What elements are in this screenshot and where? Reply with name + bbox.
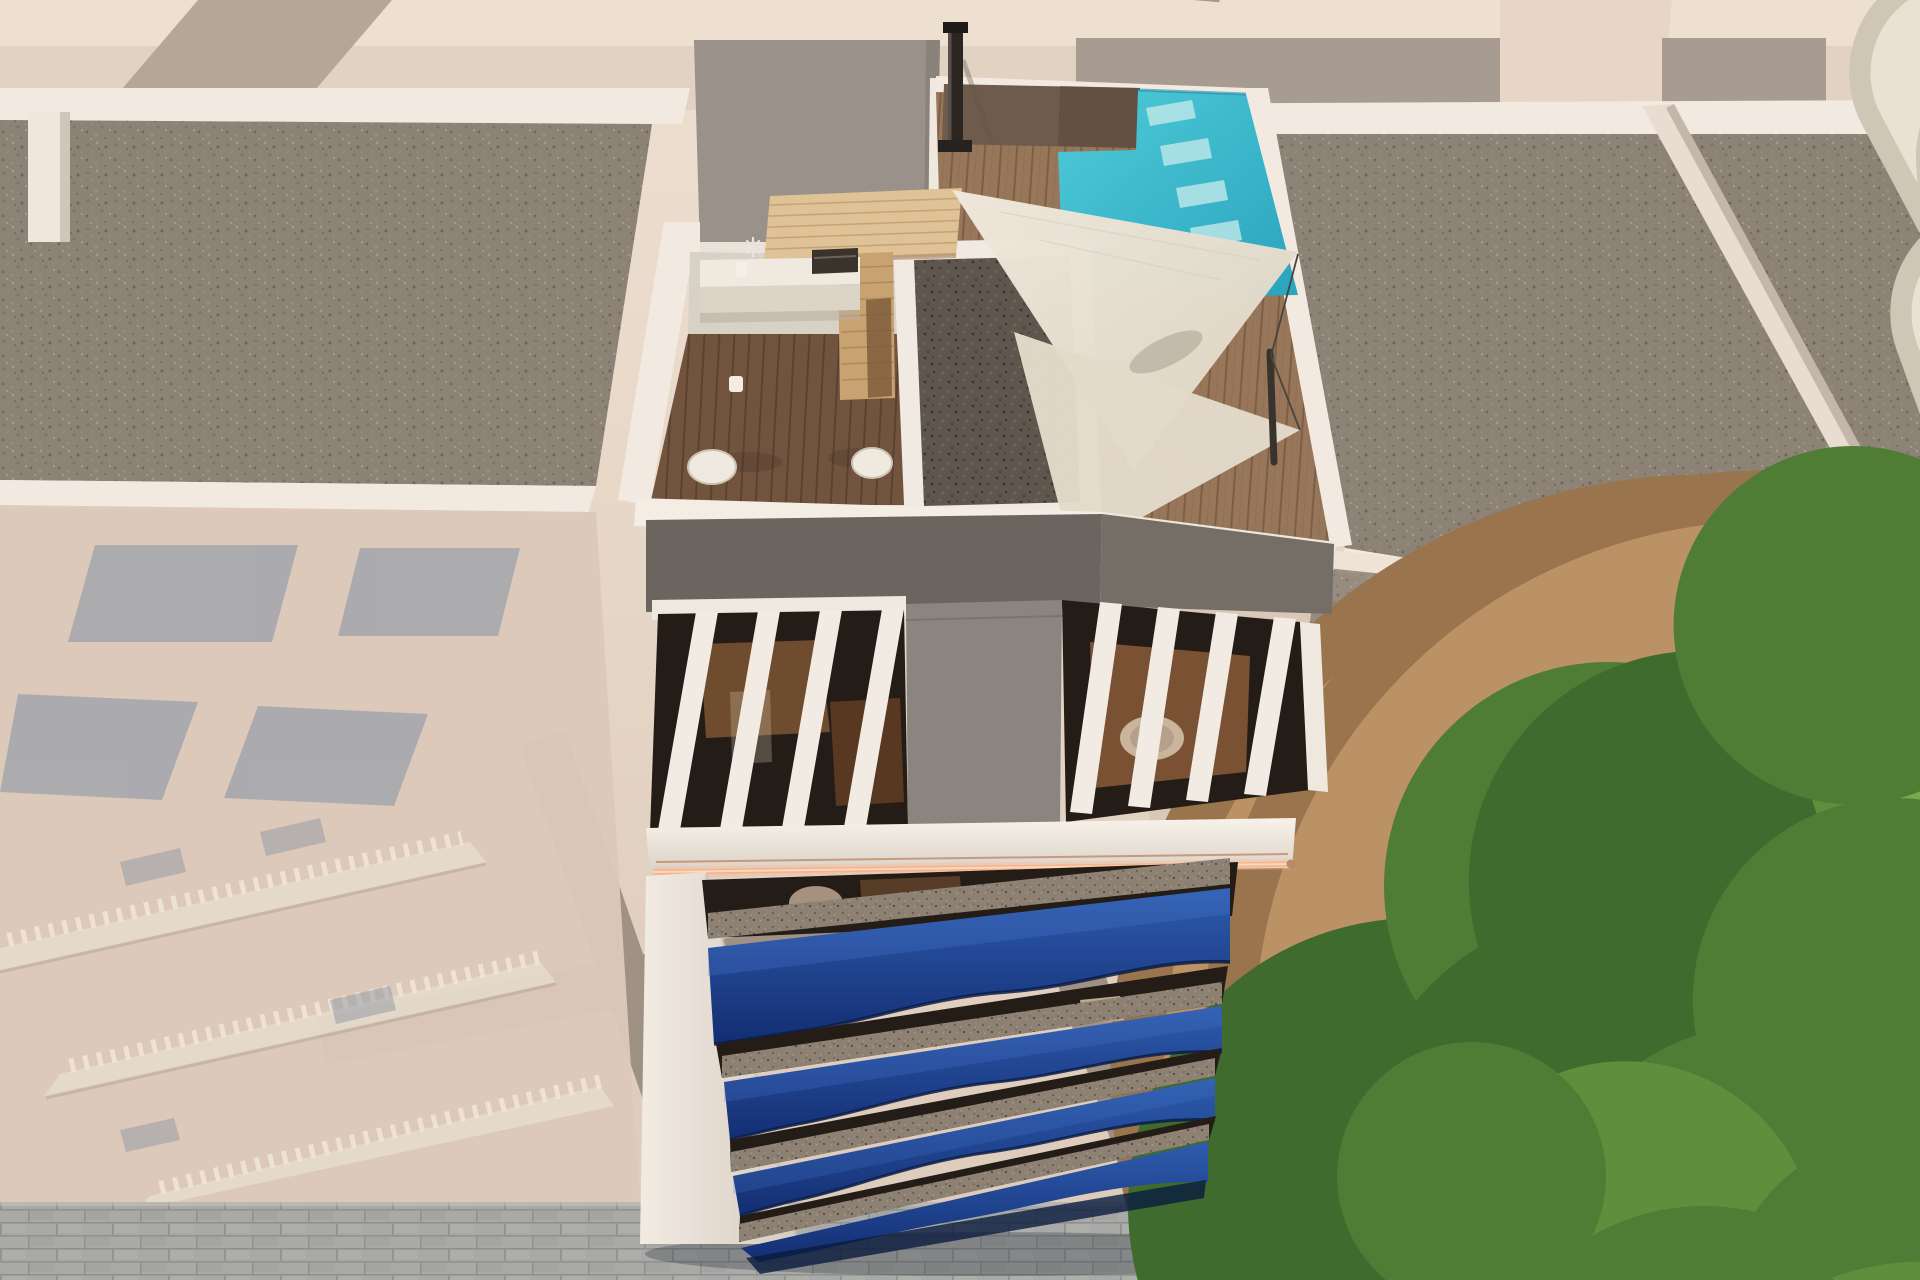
sauna-door — [866, 298, 892, 398]
counter-vase — [736, 262, 747, 277]
architectural-render-image — [0, 0, 1920, 1280]
left-roof-parapet-top — [0, 88, 690, 124]
left-roof-gravel — [0, 120, 652, 486]
plant-pot — [729, 376, 743, 392]
window-recess — [338, 548, 520, 636]
side-table — [852, 448, 892, 478]
scene-canvas — [0, 0, 1920, 1280]
left-roof-divider-shadow — [60, 112, 70, 242]
sail-pole — [1270, 352, 1274, 462]
tile-band-shade — [1058, 86, 1140, 148]
chimney-base-bracket — [938, 140, 972, 152]
left-neighbor-facade — [0, 505, 640, 1210]
pergola-roof — [764, 188, 962, 262]
window-recess — [68, 545, 298, 642]
window-recess — [224, 706, 428, 806]
chimney-cap — [943, 22, 968, 33]
star-wall-decor-icon — [744, 238, 762, 256]
shaft-front-wall — [906, 600, 1062, 826]
led-end-cap — [1287, 860, 1296, 869]
bbq-grill — [812, 248, 858, 274]
side-table — [688, 450, 736, 484]
far-wall-light-wedge — [1500, 0, 1672, 110]
outdoor-kitchen-counter-front — [700, 284, 860, 313]
